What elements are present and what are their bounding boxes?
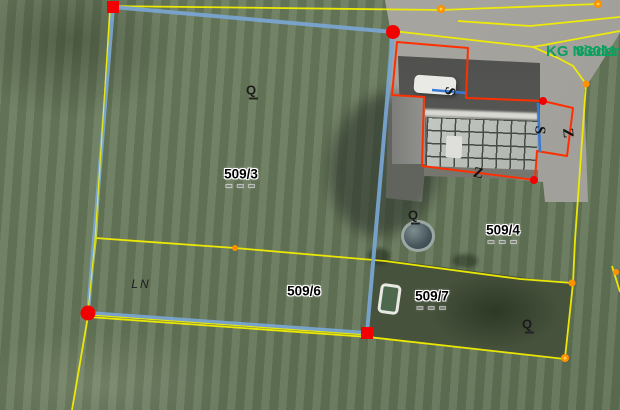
parcel-number: 509/3 — [224, 167, 258, 182]
parcel-label: 509/6 — [287, 284, 321, 299]
q-underline — [249, 98, 258, 100]
map-canvas[interactable]: KG Niedern 83011 509/3– – –509/6509/4– –… — [0, 0, 620, 410]
parcel-marks: – – – — [224, 181, 258, 192]
q-underline — [525, 332, 534, 334]
map-annotation: LN — [131, 277, 150, 291]
parcel-number: 509/6 — [287, 284, 321, 299]
map-vector-overlay — [0, 0, 620, 410]
map-annotation: Z — [558, 127, 576, 138]
parcel-marks: – – – — [486, 237, 520, 248]
parcel-number: 509/4 — [486, 223, 520, 238]
parcel-marks: – – – — [415, 303, 449, 314]
parcel-label: 509/4– – – — [486, 223, 520, 248]
parcel-label: 509/3– – – — [224, 167, 258, 192]
region-name: KG Niedern — [546, 44, 620, 60]
parcel-number: 509/7 — [415, 289, 449, 304]
region-label: KG Niedern 83011 — [546, 44, 620, 60]
parcel-label: 509/7– – – — [415, 289, 449, 314]
building-outline — [392, 42, 573, 180]
q-underline — [411, 223, 420, 225]
parcel-boundary-lines — [72, 4, 620, 410]
map-annotation: S — [530, 125, 548, 135]
map-annotation: Q — [408, 208, 418, 223]
map-annotation: Q — [246, 83, 256, 98]
map-annotation: Q — [522, 317, 532, 332]
